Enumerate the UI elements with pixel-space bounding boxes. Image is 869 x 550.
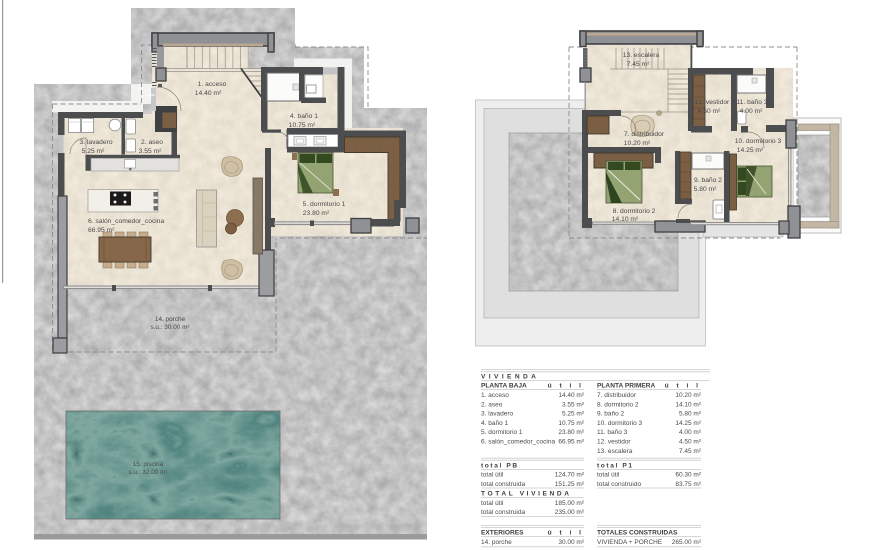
svg-text:3. lavadero: 3. lavadero [79,139,112,146]
svg-text:5.25 m²: 5.25 m² [562,411,585,418]
svg-text:11. baño 3: 11. baño 3 [597,429,628,436]
svg-text:5.80 m²: 5.80 m² [694,186,717,193]
svg-text:13. escalera: 13. escalera [623,52,660,59]
svg-text:7.45 m²: 7.45 m² [679,448,702,455]
svg-text:6. salón_comedor_cocina: 6. salón_comedor_cocina [88,218,164,225]
svg-text:66.95 m²: 66.95 m² [558,439,584,446]
svg-text:total útil: total útil [597,472,620,479]
svg-text:VIVIENDA + PORCHE: VIVIENDA + PORCHE [597,539,663,546]
svg-text:1. acceso: 1. acceso [198,81,227,88]
svg-text:1. acceso: 1. acceso [481,392,509,399]
svg-text:12. vestidor: 12. vestidor [695,99,730,106]
svg-text:124.70 m²: 124.70 m² [555,472,585,479]
svg-text:EXTERIORES: EXTERIORES [481,529,524,536]
svg-text:14. porche: 14. porche [155,316,186,323]
svg-text:14.40 m²: 14.40 m² [558,392,584,399]
svg-text:14.25 m²: 14.25 m² [737,147,764,154]
svg-text:5.25 m²: 5.25 m² [82,148,105,155]
svg-text:total construida: total construida [481,509,525,516]
svg-text:ú t i l: ú t i l [548,529,584,536]
svg-text:23.80 m²: 23.80 m² [558,429,584,436]
svg-text:12. vestidor: 12. vestidor [597,439,631,446]
svg-text:2. aseo: 2. aseo [141,139,163,146]
svg-text:10.75 m²: 10.75 m² [558,420,584,427]
svg-text:total construida: total construida [481,481,525,488]
svg-text:6. salón_comedor_cocina: 6. salón_comedor_cocina [481,439,555,446]
svg-text:4.50 m²: 4.50 m² [679,439,702,446]
svg-text:4.50 m²: 4.50 m² [698,108,721,115]
svg-text:265.00 m²: 265.00 m² [672,539,702,546]
svg-text:ú t i l: ú t i l [665,382,701,389]
svg-text:PLANTA PRIMERA: PLANTA PRIMERA [597,382,655,389]
svg-text:8. dormitorio 2: 8. dormitorio 2 [613,208,656,215]
svg-text:185.00 m²: 185.00 m² [555,500,585,507]
svg-text:151.25 m²: 151.25 m² [555,481,585,488]
svg-text:ú t i l: ú t i l [548,382,584,389]
svg-text:8. dormitorio 2: 8. dormitorio 2 [597,401,639,408]
svg-text:13. escalera: 13. escalera [597,448,633,455]
svg-text:10.20 m²: 10.20 m² [675,392,701,399]
svg-text:4.00 m²: 4.00 m² [679,429,702,436]
svg-text:14. porche: 14. porche [481,539,512,546]
svg-text:total P1: total P1 [597,462,634,469]
svg-text:83.75 m²: 83.75 m² [675,481,701,488]
svg-text:30.00 m²: 30.00 m² [558,539,584,546]
svg-text:14.10 m²: 14.10 m² [675,401,701,408]
svg-text:23.80 m²: 23.80 m² [303,210,330,217]
svg-text:5. dormitorio 1: 5. dormitorio 1 [303,201,346,208]
svg-text:TOTAL VIVIENDA: TOTAL VIVIENDA [481,491,572,498]
svg-text:4.00 m²: 4.00 m² [740,108,763,115]
svg-text:4. baño 1: 4. baño 1 [481,420,508,427]
svg-text:3.55 m²: 3.55 m² [139,148,162,155]
svg-text:3. lavadero: 3. lavadero [481,411,514,418]
svg-text:10.20 m²: 10.20 m² [624,140,651,147]
svg-text:10.75 m²: 10.75 m² [289,122,316,129]
svg-text:2. aseo: 2. aseo [481,401,503,408]
svg-text:total PB: total PB [481,462,519,469]
svg-text:60.30 m²: 60.30 m² [675,472,701,479]
svg-text:total útil: total útil [481,472,504,479]
svg-text:4. baño 1: 4. baño 1 [290,113,318,120]
svg-text:total construido: total construido [597,481,641,488]
svg-text:10. dormitorio 3: 10. dormitorio 3 [735,138,782,145]
svg-text:15. piscina: 15. piscina [133,461,164,468]
svg-text:14.25 m²: 14.25 m² [675,420,701,427]
svg-text:14.10 m²: 14.10 m² [612,216,639,223]
svg-text:s.u.: 30.00 m²: s.u.: 30.00 m² [150,324,189,331]
svg-text:14.40 m²: 14.40 m² [195,90,222,97]
svg-text:TOTALES CONSTRUIDAS: TOTALES CONSTRUIDAS [597,529,678,536]
svg-text:VIVIENDA: VIVIENDA [481,373,539,380]
svg-text:66.95 m²: 66.95 m² [88,227,115,234]
svg-text:3.55 m²: 3.55 m² [562,401,585,408]
svg-text:7.45 m²: 7.45 m² [627,61,650,68]
svg-text:9. baño 2: 9. baño 2 [597,411,624,418]
svg-text:total útil: total útil [481,500,504,507]
svg-text:7. distribuidor: 7. distribuidor [624,131,665,138]
svg-text:5. dormitorio 1: 5. dormitorio 1 [481,429,523,436]
svg-text:9. baño 2: 9. baño 2 [694,177,722,184]
svg-text:s.u.: 32.00 m²: s.u.: 32.00 m² [128,469,167,476]
svg-text:PLANTA BAJA: PLANTA BAJA [481,382,527,389]
svg-text:5.80 m²: 5.80 m² [679,411,702,418]
svg-text:11. baño 3: 11. baño 3 [736,99,767,106]
svg-text:10. dormitorio 3: 10. dormitorio 3 [597,420,643,427]
svg-text:7. distribuidor: 7. distribuidor [597,392,637,399]
svg-text:235.00 m²: 235.00 m² [555,509,585,516]
